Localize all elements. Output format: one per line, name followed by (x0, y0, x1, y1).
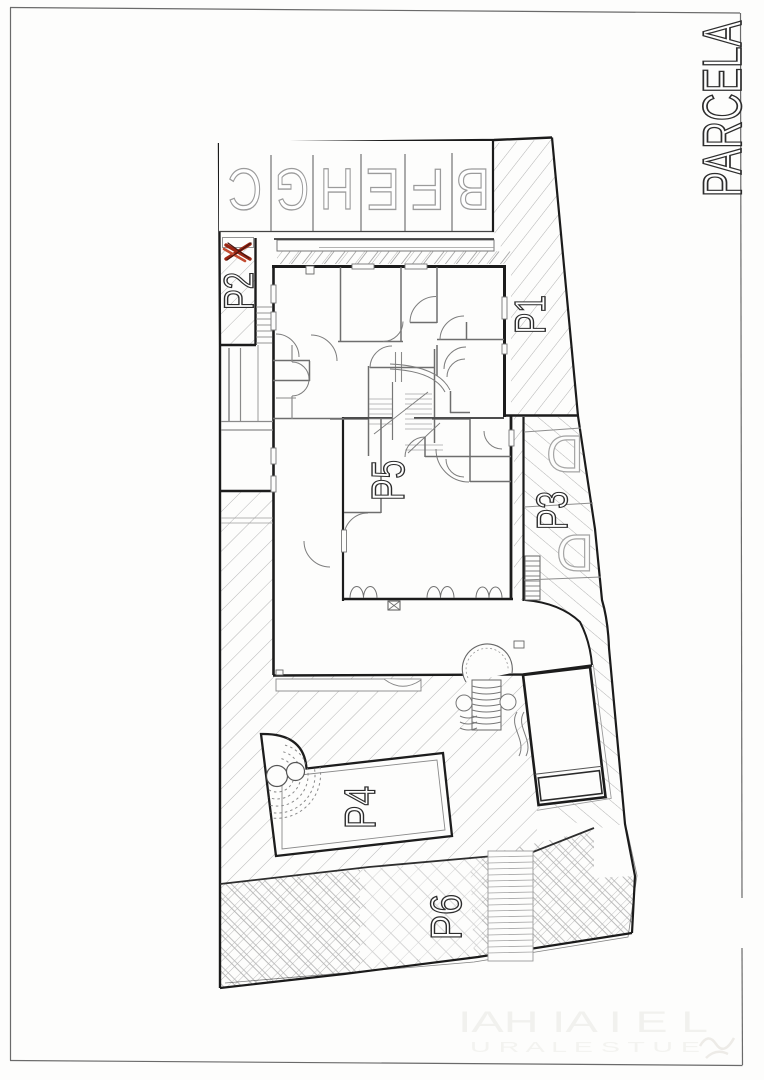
svg-text:E: E (366, 156, 400, 221)
svg-text:P4: P4 (336, 786, 385, 829)
svg-text:D: D (546, 424, 584, 482)
svg-text:U R A L E S T U E: U R A L E S T U E (470, 1039, 700, 1056)
svg-text:F: F (411, 156, 445, 221)
svg-text:B: B (456, 156, 490, 221)
svg-text:D: D (556, 523, 594, 581)
svg-text:H: H (320, 156, 354, 221)
svg-text:P6: P6 (422, 894, 471, 940)
svg-text:G: G (275, 156, 309, 221)
svg-text:P3: P3 (528, 491, 577, 530)
svg-text:PARCELA: PARCELA (691, 21, 753, 197)
svg-text:IAH IA I E L: IAH IA I E L (458, 1006, 708, 1039)
svg-text:C: C (228, 156, 262, 221)
svg-text:P2: P2 (215, 272, 262, 310)
svg-text:P1: P1 (506, 295, 555, 334)
svg-text:P5: P5 (362, 460, 414, 501)
